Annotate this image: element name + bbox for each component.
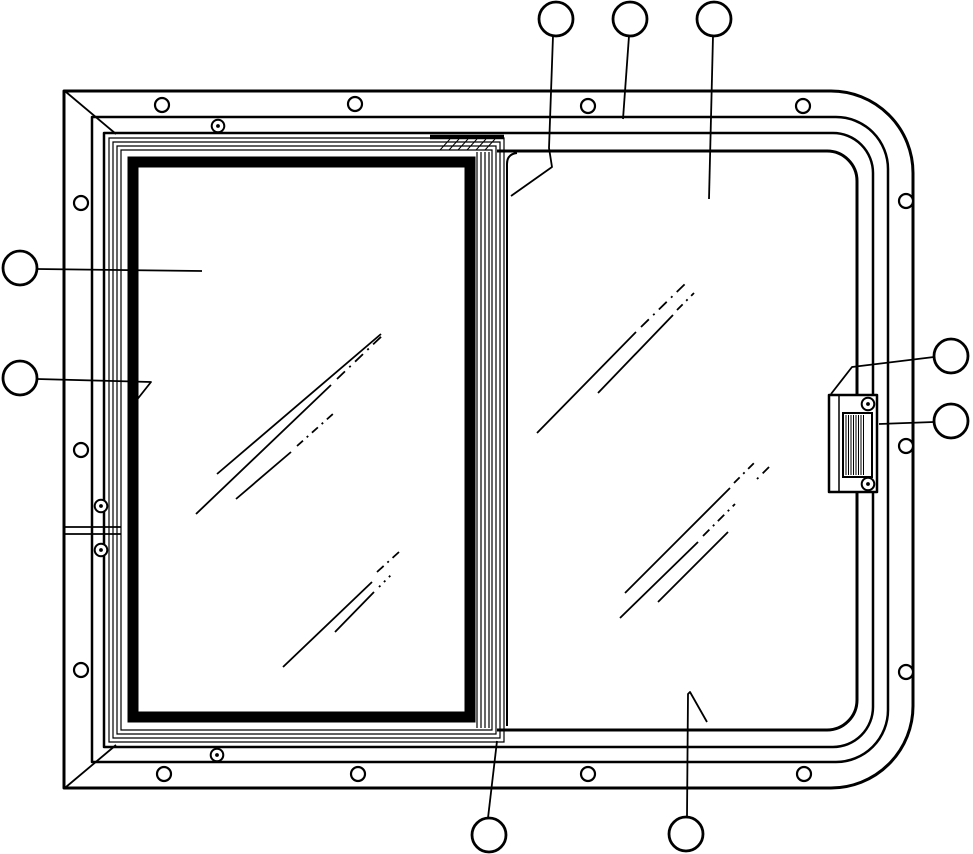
screw-hole bbox=[348, 97, 362, 111]
glass-reflection-lines bbox=[196, 281, 770, 667]
screw-hole bbox=[351, 767, 365, 781]
frame-screw-center bbox=[215, 753, 219, 757]
screw-hole bbox=[899, 439, 913, 453]
callout-leader-right-1 bbox=[831, 357, 934, 394]
glass-reflection-line bbox=[337, 333, 385, 379]
callout-leader-top-2 bbox=[623, 36, 629, 119]
frame-screw-center bbox=[99, 548, 103, 552]
screw-hole bbox=[899, 665, 913, 679]
sash-line-4 bbox=[121, 150, 492, 730]
screw-hole bbox=[157, 767, 171, 781]
glass-reflection-line bbox=[377, 552, 399, 572]
callout-leader-bottom-2 bbox=[687, 692, 707, 817]
sash-line-1 bbox=[109, 138, 504, 742]
callout-leader-left-1 bbox=[37, 269, 202, 271]
screw-hole bbox=[74, 663, 88, 677]
screw-hole bbox=[74, 196, 88, 210]
divider-channel-lines bbox=[477, 152, 489, 728]
frame-screw-center bbox=[866, 402, 870, 406]
figure-page bbox=[0, 0, 973, 854]
glass-reflection-line bbox=[734, 462, 755, 483]
screw-hole bbox=[797, 767, 811, 781]
glass-reflection-line bbox=[658, 532, 728, 602]
callout-balloon-top-3 bbox=[697, 2, 731, 36]
glass-reflection-line bbox=[283, 582, 372, 667]
sash-heavy-band bbox=[133, 162, 470, 717]
window-assembly-figure bbox=[0, 0, 973, 854]
fixed-pane-edge bbox=[507, 153, 517, 726]
callout-balloon-top-1 bbox=[539, 2, 573, 36]
frame-opening-edge bbox=[497, 151, 857, 730]
sash-line-2 bbox=[113, 142, 500, 738]
glass-reflection-line bbox=[196, 385, 331, 514]
glass-reflection-line bbox=[625, 488, 730, 593]
glass-reflection-line bbox=[703, 504, 735, 536]
callout-balloon-right-1 bbox=[934, 339, 968, 373]
screw-hole bbox=[899, 194, 913, 208]
glass-reflection-line bbox=[537, 332, 636, 433]
callout-balloon-bottom-2 bbox=[669, 817, 703, 851]
glass-reflection-line bbox=[677, 293, 694, 310]
callout-balloon-left-2 bbox=[3, 361, 37, 395]
frame-screw-center bbox=[866, 482, 870, 486]
screw-hole bbox=[581, 99, 595, 113]
divider-top-hatch bbox=[440, 139, 495, 150]
glass-reflection-line bbox=[757, 466, 770, 479]
glass-reflection-line bbox=[236, 452, 291, 499]
frame-screw-center bbox=[216, 124, 220, 128]
screw-hole bbox=[74, 443, 88, 457]
glass-reflection-line bbox=[379, 575, 391, 587]
screw-hole bbox=[581, 767, 595, 781]
callout-balloon-bottom-1 bbox=[472, 818, 506, 852]
callout-balloon-right-2 bbox=[934, 404, 968, 438]
screw-hole bbox=[796, 99, 810, 113]
screw-hole bbox=[155, 98, 169, 112]
sliding-pane-sash bbox=[109, 138, 504, 742]
glass-reflection-line bbox=[217, 334, 381, 474]
frame-second-line bbox=[92, 117, 888, 762]
glass-reflection-line bbox=[641, 281, 688, 327]
callout-balloon-top-2 bbox=[613, 2, 647, 36]
flange-screw-holes bbox=[74, 97, 913, 781]
frame-screw-center bbox=[99, 504, 103, 508]
glass-reflection-line bbox=[620, 542, 698, 618]
glass-reflection-line bbox=[598, 315, 673, 393]
callout-leader-bottom-1 bbox=[488, 741, 497, 818]
glass-reflection-line bbox=[297, 413, 334, 446]
callout-balloon-left-1 bbox=[3, 251, 37, 285]
